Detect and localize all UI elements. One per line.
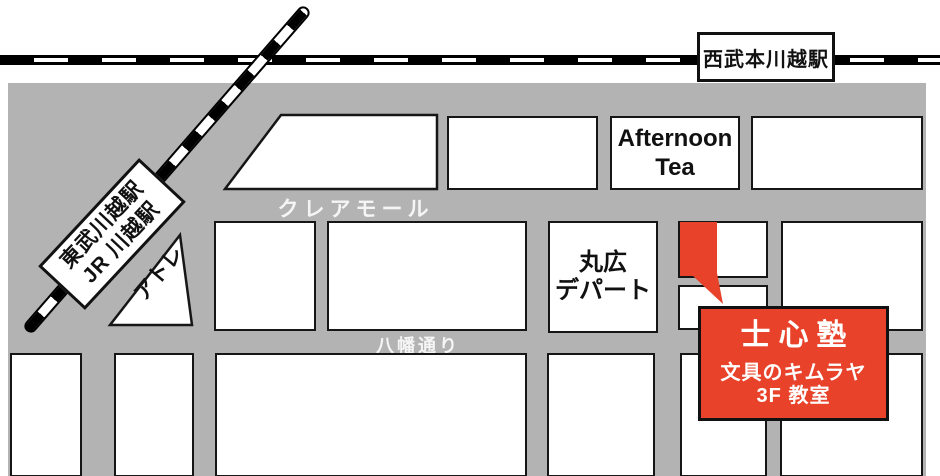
street-label-crea-mall: クレアモール — [268, 193, 443, 223]
city-block-kimuraya-site — [678, 221, 768, 278]
block-afternoon-tea: Afternoon Tea — [610, 116, 740, 190]
access-map: クレアモール 八幡通り Afternoon Tea 丸広 デパート アトレ 西 — [0, 0, 940, 476]
destination-building: 文具のキムラヤ — [721, 362, 867, 385]
maruhiro-line1: 丸広 — [579, 249, 627, 277]
maruhiro-label: 丸広 デパート — [550, 223, 656, 331]
destination-title: 士心塾 — [733, 319, 855, 353]
station-label-seibu-honkawagoe: 西武本川越駅 — [697, 32, 835, 82]
city-block — [114, 353, 194, 476]
city-block — [447, 116, 598, 190]
afternoon-tea-line2: Tea — [655, 153, 695, 182]
city-block — [327, 221, 527, 331]
afternoon-tea-line1: Afternoon — [618, 124, 733, 153]
city-block — [547, 353, 655, 476]
city-block — [214, 221, 316, 331]
city-block — [751, 116, 923, 190]
seibu-station-name: 西武本川越駅 — [703, 43, 829, 72]
destination-callout: 士心塾 文具のキムラヤ 3F 教室 — [698, 306, 889, 421]
afternoon-tea-label: Afternoon Tea — [612, 118, 738, 188]
city-block — [10, 353, 82, 476]
city-block — [215, 353, 527, 476]
maruhiro-line2: デパート — [555, 277, 651, 305]
block-maruhiro-department-store: 丸広 デパート — [548, 221, 658, 333]
destination-floor: 3F 教室 — [757, 385, 831, 408]
